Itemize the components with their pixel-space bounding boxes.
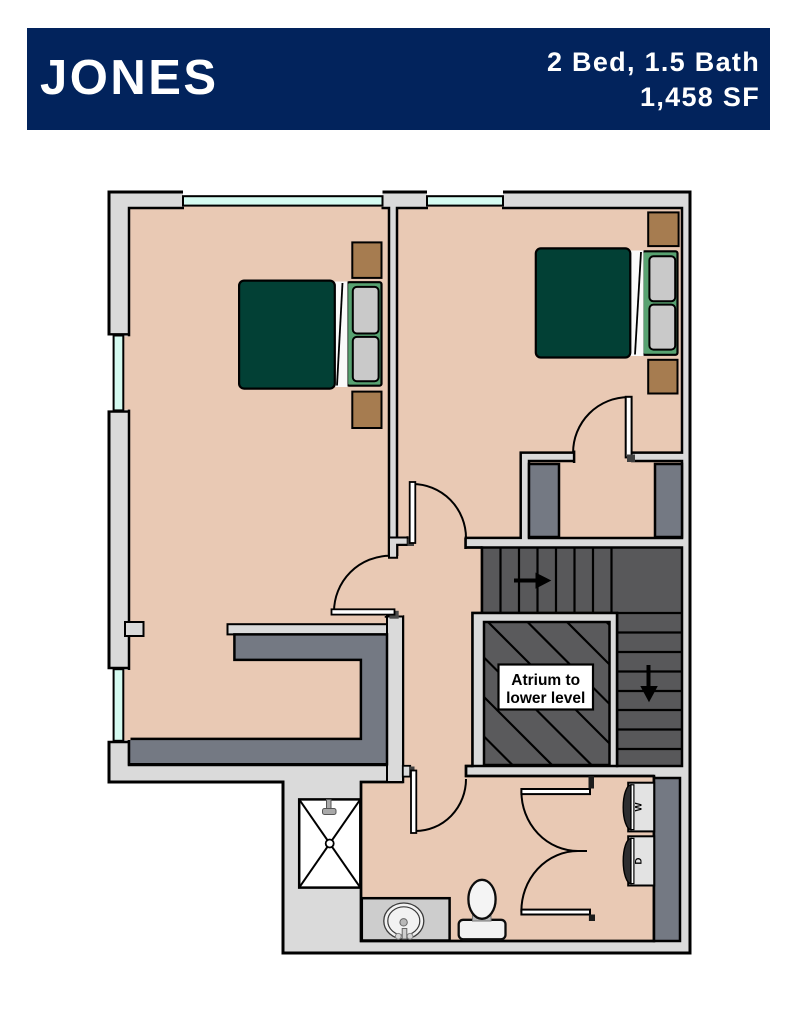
svg-text:lower level: lower level <box>506 690 585 707</box>
svg-text:W: W <box>634 802 645 811</box>
svg-text:Atrium to: Atrium to <box>511 672 580 689</box>
svg-text:D: D <box>634 857 645 864</box>
